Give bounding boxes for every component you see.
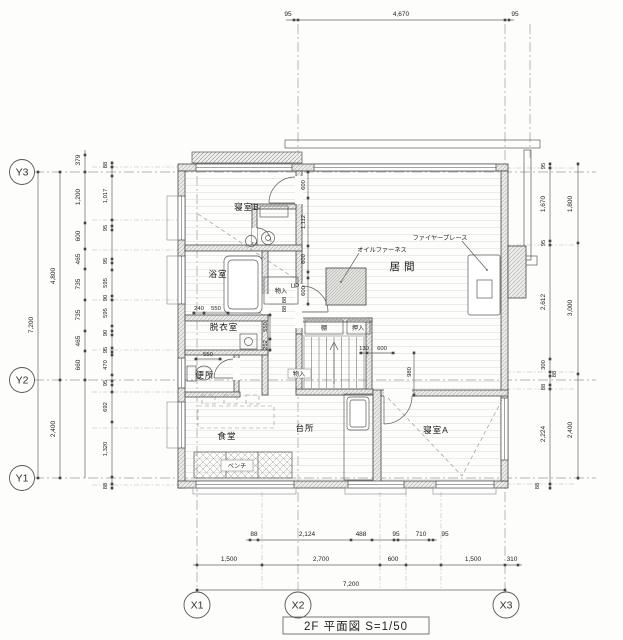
dim-label: 7,200 (343, 581, 360, 588)
dim-label: 488 (356, 531, 367, 538)
dim-label: 95 (103, 347, 109, 353)
dim-label: 735 (75, 309, 82, 320)
bench-label: ベンチ (228, 463, 247, 470)
dim-label: 600 (301, 254, 307, 264)
dim-label: 465 (75, 253, 82, 264)
room-label-toilet: 便所 (195, 370, 214, 380)
dim-label: 95 (103, 380, 109, 386)
room-label-living: 居間 (390, 261, 419, 273)
dim-label: 550 (211, 306, 221, 312)
dim-label: 600 (301, 180, 307, 190)
dim-label: 88 (535, 483, 541, 489)
dim-label: 88 (103, 483, 109, 489)
dim-label: 660 (75, 359, 82, 370)
dim-label: 2,400 (567, 421, 574, 438)
dim-label: 95 (441, 531, 449, 538)
room-label-kitchen: 台所 (295, 423, 314, 433)
deck-rail (524, 150, 531, 260)
dim-label: 1,500 (221, 556, 238, 563)
dim-label: 1,112 (301, 215, 307, 229)
up-label: UP (291, 283, 300, 290)
room-label-bedroom-b: 寝室B (234, 202, 260, 212)
dim-label: 4,670 (393, 11, 410, 18)
dim-label: 595 (103, 308, 109, 318)
dim-label: 2,400 (50, 420, 57, 437)
axis-label-y3: Y3 (16, 167, 29, 179)
axis-label-x1: X1 (191, 600, 204, 612)
title-block: 2F 平面図 S=1/50 (283, 617, 429, 634)
axis-label-x2: X2 (292, 600, 305, 612)
dim-label: 240 (194, 306, 204, 312)
dim-label: 95 (103, 225, 109, 231)
dim-label: 1,500 (465, 556, 482, 563)
dim-label: 2,700 (313, 556, 330, 563)
dim-label: 550 (263, 322, 269, 332)
dim-label: 980 (407, 367, 413, 377)
dim-label: 1,670 (540, 195, 547, 212)
dim-label: 95 (392, 531, 400, 538)
dim-label: 2,124 (299, 531, 316, 538)
dim-label: 600 (301, 286, 307, 296)
dim-label: 735 (75, 278, 82, 289)
dim-label: 379 (75, 154, 82, 165)
dim-label: 95 (541, 240, 547, 246)
dim-label: 7,200 (28, 316, 35, 333)
dim-label: 2,612 (540, 293, 547, 310)
dim-label: 600 (75, 230, 82, 241)
room-label-bedroom-a: 寝室A (423, 425, 449, 435)
dim-label: 600 (377, 346, 387, 352)
storage-label-b: 物入 (293, 370, 305, 378)
dim-label: 2,224 (540, 425, 547, 442)
dim-label: 90 (103, 330, 109, 336)
dim-label: 88 (282, 297, 288, 303)
dim-label: 1,320 (103, 442, 109, 457)
dim-label: 710 (416, 531, 427, 538)
dim-label: 95 (511, 11, 519, 18)
room-label-dressing: 脱衣室 (210, 322, 239, 332)
dim-label: 3,000 (567, 299, 574, 316)
axis-label-y2: Y2 (16, 375, 29, 387)
storage-label-a: 物入 (275, 287, 287, 295)
dim-label: 95 (103, 258, 109, 264)
fireplace-label: ファイヤープレース (413, 235, 468, 242)
dim-label: 600 (388, 556, 399, 563)
axis-label-y1: Y1 (16, 473, 29, 485)
dim-label: 550 (203, 352, 213, 358)
floor-plan-page: 95 4,670 95 7,200 4,800 2,400 379 1,200 … (0, 0, 623, 640)
dim-label: 88 (103, 162, 109, 168)
dim-label: 88 (250, 531, 258, 538)
roof-edge (285, 140, 540, 148)
dim-label: 88 (282, 306, 288, 312)
drawing-title: 2F 平面図 S=1/50 (304, 620, 408, 633)
oil-furnace-label: オイルファーネス (357, 247, 407, 254)
shelf-label: 棚 (321, 324, 327, 332)
fireplace-hearth (468, 255, 500, 315)
dim-label: 300 (541, 360, 547, 370)
dim-label: 88 (552, 371, 558, 377)
dim-label: 88 (541, 384, 547, 390)
axis-label-x3: X3 (500, 600, 513, 612)
dim-label: 310 (507, 556, 518, 563)
dim-label: 470 (103, 360, 109, 370)
fireplace-chimney (508, 246, 526, 298)
balcony-hatch (192, 152, 302, 163)
dim-label: 692 (103, 402, 109, 412)
bathtub (224, 256, 262, 313)
dim-label: 1,017 (103, 189, 109, 204)
dim-label: 595 (103, 278, 109, 288)
dim-label: 1,200 (75, 188, 82, 205)
room-label-bath: 浴室 (208, 269, 227, 279)
dim-label: 90 (103, 295, 109, 301)
dim-label: 95 (284, 11, 292, 18)
dim-label: 4,800 (50, 267, 57, 284)
dim-label: 1,800 (567, 195, 574, 212)
closet-label: 押入 (352, 324, 364, 332)
dim-label: 95 (541, 163, 547, 169)
room-label-dining: 食堂 (217, 431, 236, 441)
floor-plan-drawing: 95 4,670 95 7,200 4,800 2,400 379 1,200 … (0, 0, 623, 640)
dim-label: 465 (75, 335, 82, 346)
dim-label: 252 (263, 340, 269, 350)
dim-label: 130 (359, 346, 369, 352)
